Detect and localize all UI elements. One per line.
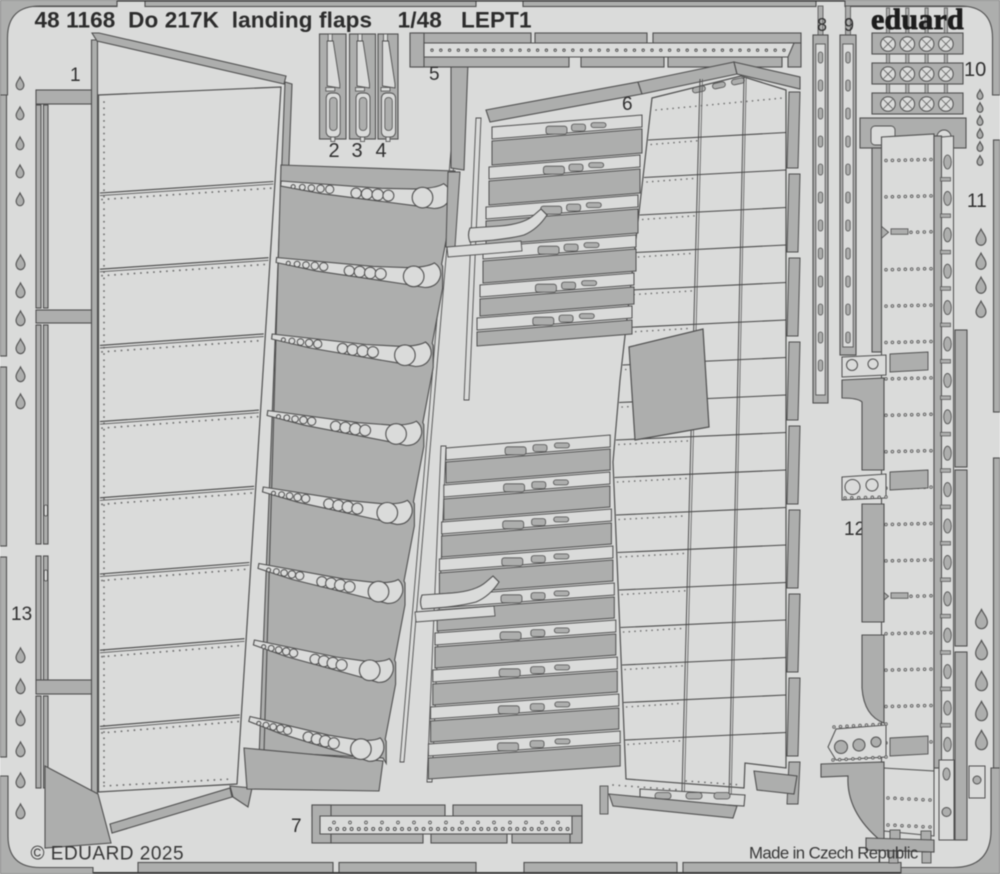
svg-text:2: 2 (328, 140, 339, 162)
svg-text:11: 11 (967, 191, 987, 212)
svg-text:5: 5 (429, 64, 440, 85)
svg-text:48 1168 Do 217K landing flap: 48 1168 Do 217K landing flaps 1/48 LEPT1 (35, 8, 532, 33)
svg-text:6: 6 (622, 94, 633, 115)
svg-text:8: 8 (817, 15, 827, 35)
svg-text:7: 7 (291, 816, 302, 837)
svg-text:eduard: eduard (871, 3, 964, 36)
svg-text:3: 3 (351, 140, 362, 162)
svg-text:10: 10 (964, 59, 986, 81)
svg-text:4: 4 (375, 140, 386, 162)
svg-text:13: 13 (11, 604, 32, 625)
svg-text:Made in Czech Republic: Made in Czech Republic (749, 844, 918, 863)
svg-text:1: 1 (70, 65, 81, 86)
svg-text:© EDUARD 2025: © EDUARD 2025 (31, 844, 185, 865)
svg-text:9: 9 (844, 15, 854, 35)
